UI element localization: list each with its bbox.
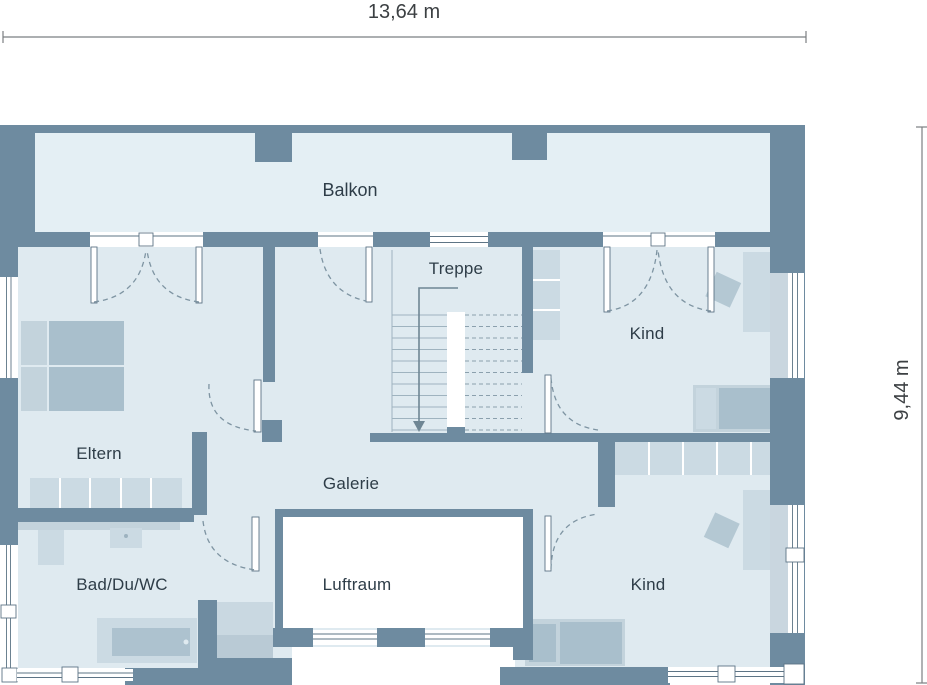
window-corner-post [2, 668, 17, 682]
floor-plan-page: Balkon Treppe Kind Eltern Galerie Luftra… [0, 0, 927, 685]
balcony-pillar [255, 128, 292, 162]
luftraum-void [283, 517, 523, 628]
window-west-bath [1, 545, 17, 682]
shower [217, 602, 273, 658]
width-dimension-label: 13,64 m [368, 1, 440, 23]
closet [533, 250, 560, 340]
parents-wardrobe [30, 478, 182, 509]
label-kind-bottom: Kind [631, 575, 666, 594]
window-south-bath [17, 667, 133, 682]
child-bed-bottom [525, 619, 625, 666]
label-luftraum: Luftraum [323, 575, 392, 594]
dimension-width: 13,64 m [3, 1, 806, 43]
terrace-below [292, 647, 515, 685]
window-south-child-bottom [668, 664, 804, 684]
balcony-floor [35, 133, 770, 232]
label-galerie: Galerie [323, 474, 379, 493]
dimension-height: 9,44 m [891, 127, 927, 683]
window-corner-post [784, 664, 804, 684]
window-west-eltern [2, 277, 16, 378]
window-post [786, 548, 804, 562]
label-treppe: Treppe [429, 259, 483, 278]
height-dimension-label: 9,44 m [891, 359, 913, 420]
floor-plan-drawing: Balkon Treppe Kind Eltern Galerie Luftra… [0, 0, 927, 685]
label-bad: Bad/Du/WC [76, 575, 168, 594]
door-post [139, 233, 153, 246]
window-north [430, 232, 488, 247]
child-wardrobe-bottom [615, 442, 787, 475]
door-post [651, 233, 665, 246]
window-east-child-top [770, 273, 804, 378]
window-post [1, 605, 16, 618]
label-eltern: Eltern [76, 444, 122, 463]
window-post [62, 667, 78, 682]
balcony-pillar [512, 128, 547, 160]
washbasin [38, 530, 64, 565]
stair-rail [447, 312, 465, 433]
bathtub [97, 618, 197, 663]
window-east-child-bottom [770, 505, 804, 633]
window-post [718, 666, 735, 682]
label-kind-top: Kind [630, 324, 665, 343]
label-balkon: Balkon [322, 180, 377, 200]
